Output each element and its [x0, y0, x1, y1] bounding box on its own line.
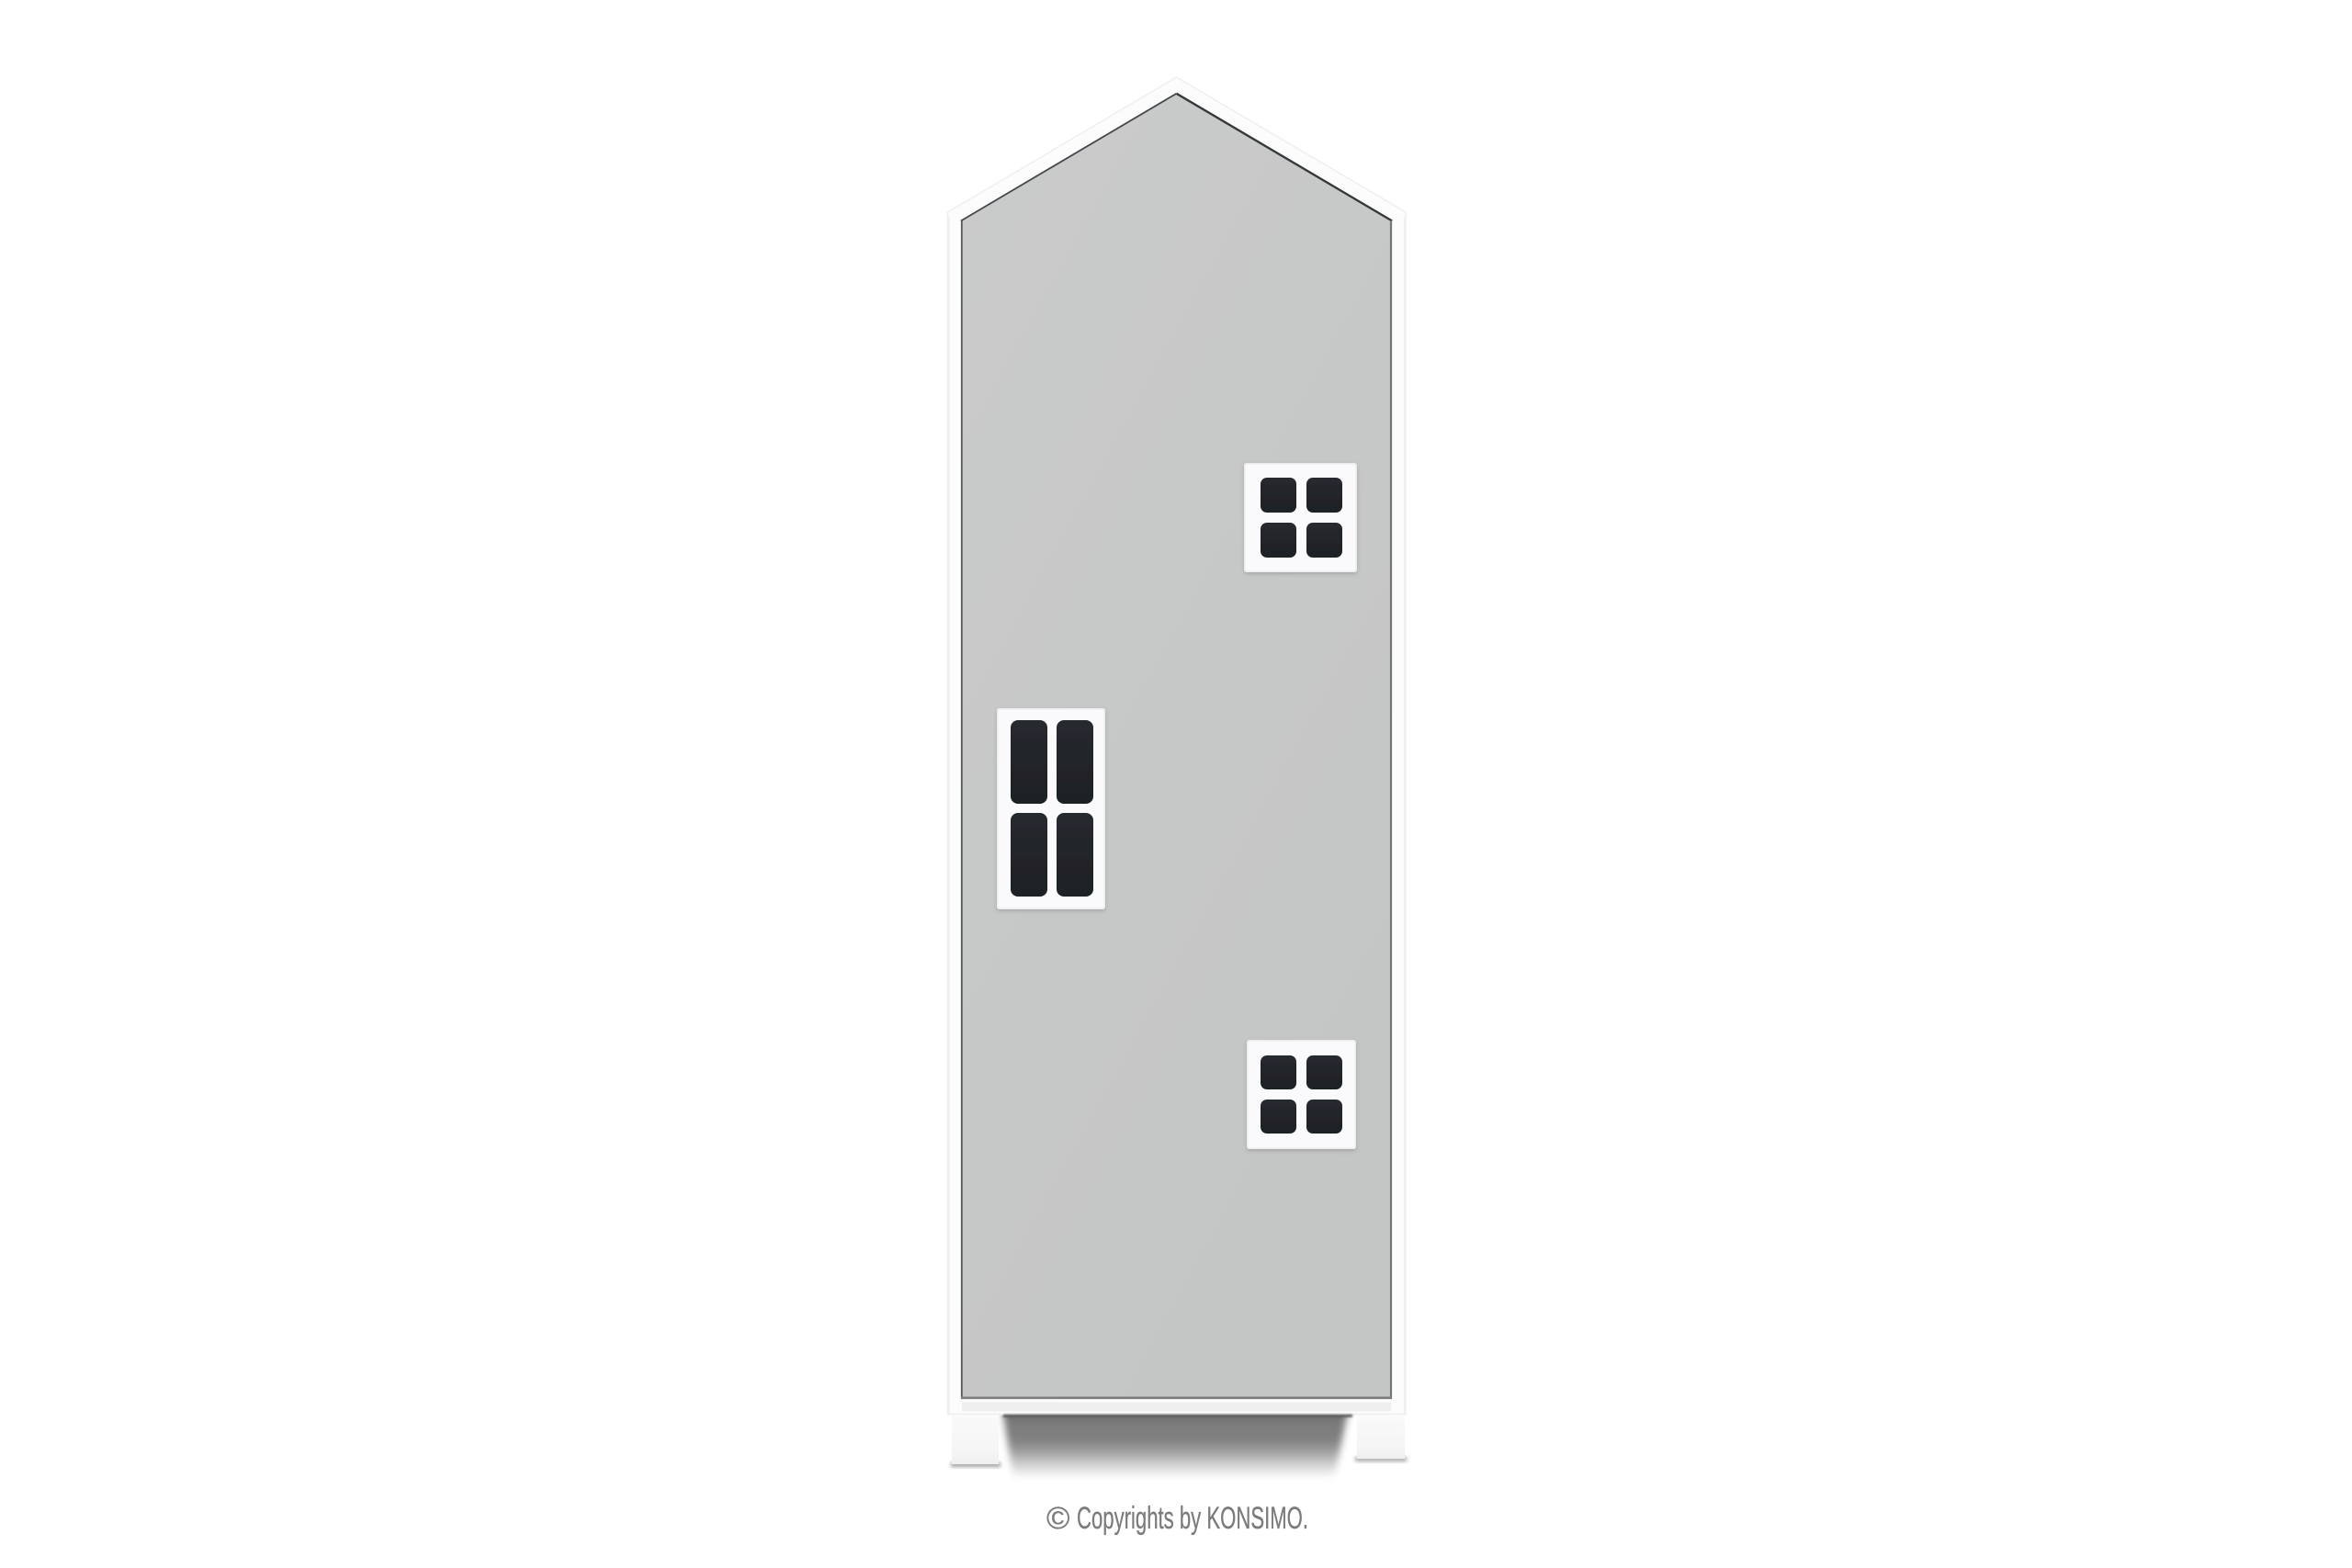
svg-text:©: © — [1046, 1501, 1069, 1536]
svg-text:Copyrights by KONSIMO.: Copyrights by KONSIMO. — [1077, 1501, 1308, 1536]
